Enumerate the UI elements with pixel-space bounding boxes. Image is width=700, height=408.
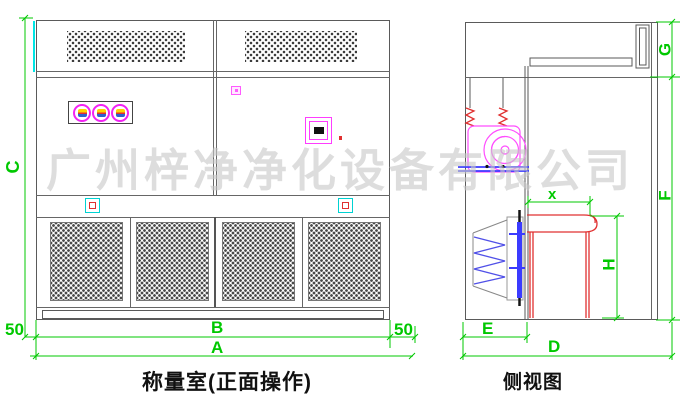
- flex-duct-connectors: [466, 108, 507, 126]
- exhaust-damper-inner: [640, 28, 647, 65]
- dim-label-C: C: [4, 156, 22, 178]
- dim-label-D: D: [548, 338, 560, 355]
- dim-label-50-left: 50: [5, 321, 24, 338]
- dim-label-G: G: [657, 40, 674, 60]
- detail-linework: [0, 0, 700, 408]
- dim-label-B: B: [211, 319, 223, 336]
- hepa-filter-assembly: [473, 210, 525, 306]
- filter-media-zigzag: [474, 237, 505, 284]
- dim-label-E: E: [482, 320, 493, 337]
- front-view-title: 称量室(正面操作): [116, 366, 338, 396]
- top-cover-plate: [530, 58, 632, 66]
- dim-label-H: H: [601, 255, 618, 275]
- company-watermark: 广州梓净净化设备有限公司: [46, 146, 662, 196]
- work-table: [527, 215, 597, 318]
- cad-drawing-canvas: C 50 B 50 A G F x H E D 称量室(正面操作) 侧视图 广州…: [0, 0, 700, 408]
- side-view-title: 侧视图: [498, 367, 568, 394]
- dim-label-A: A: [211, 339, 223, 356]
- dim-label-50-right: 50: [394, 321, 413, 338]
